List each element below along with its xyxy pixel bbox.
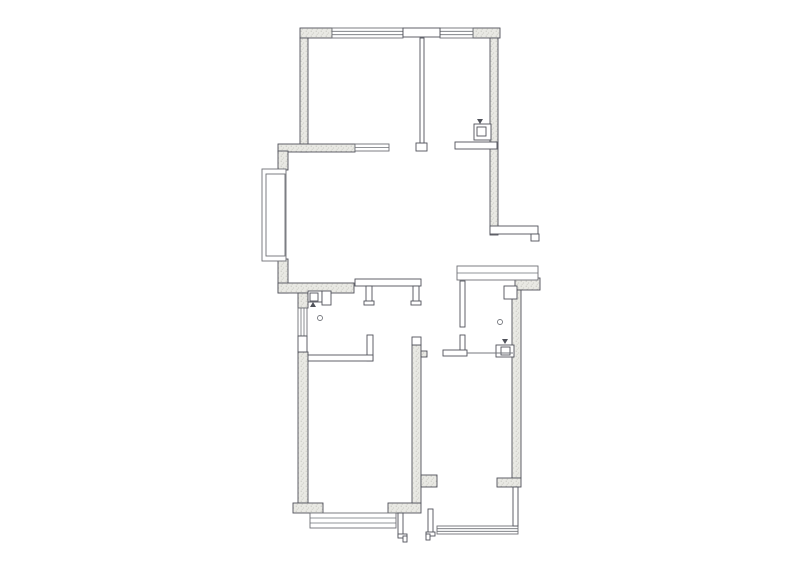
center-wall-tab (421, 351, 427, 357)
bedroom-left-wall-upper (460, 281, 465, 327)
wall-cap (416, 143, 427, 151)
appliance-inner (477, 127, 486, 136)
bath-left-wall-top (298, 293, 308, 308)
right-thin-wall (513, 487, 518, 526)
drain-symbol (318, 316, 323, 321)
bottom-bay-window (310, 513, 396, 528)
right-wall-stub (497, 478, 521, 487)
bedroom-counter-block (443, 350, 467, 356)
bottom-right-window (437, 526, 518, 534)
kitchen-counter (455, 142, 497, 149)
door-jamb-right (428, 509, 433, 535)
bay-window-inner (266, 174, 285, 256)
door-stop (403, 536, 407, 542)
valve-marker (502, 339, 508, 344)
upper-left-wall (300, 38, 308, 152)
valve-marker (310, 302, 316, 307)
wall-opening-panel (298, 336, 307, 352)
ledge-notch (531, 234, 539, 241)
top-wall-left (300, 28, 332, 38)
door-stop (426, 534, 430, 540)
bottom-left-corner-wall (293, 503, 323, 513)
top-window-left (332, 28, 403, 38)
sink-basin (310, 293, 318, 301)
wall-cap (364, 301, 374, 305)
balcony-ledge (490, 226, 538, 234)
partition-upper-rooms (420, 38, 424, 143)
center-wall (412, 345, 421, 503)
bath-bottom-partition (308, 355, 373, 361)
floorplan-canvas (0, 0, 800, 570)
valve-marker (477, 119, 483, 124)
door-jamb-left (398, 513, 403, 537)
floorplan-page (0, 0, 800, 570)
bedroom-left-wall-lower (460, 335, 465, 352)
bath-top-partition (355, 279, 421, 286)
top-window-right (440, 28, 473, 38)
drain-symbol (498, 320, 503, 325)
cabinet-box (322, 291, 331, 305)
top-wall-right (473, 28, 500, 38)
bottom-center-wall (388, 503, 421, 513)
hall-hanging-wall (413, 286, 419, 303)
bath-side-window (298, 308, 307, 336)
living-left-wall-above-bay (278, 151, 288, 170)
wall-cap (412, 337, 421, 345)
center-wall-stub (421, 475, 437, 487)
lower-right-wall (512, 290, 521, 478)
column (504, 286, 517, 299)
lintel (403, 28, 440, 37)
bath-hanging-wall (366, 286, 372, 303)
wall-cap (411, 301, 421, 305)
appliance-inner (501, 347, 510, 355)
mid-horizontal-wall (278, 144, 355, 152)
lower-left-wall (298, 352, 308, 503)
